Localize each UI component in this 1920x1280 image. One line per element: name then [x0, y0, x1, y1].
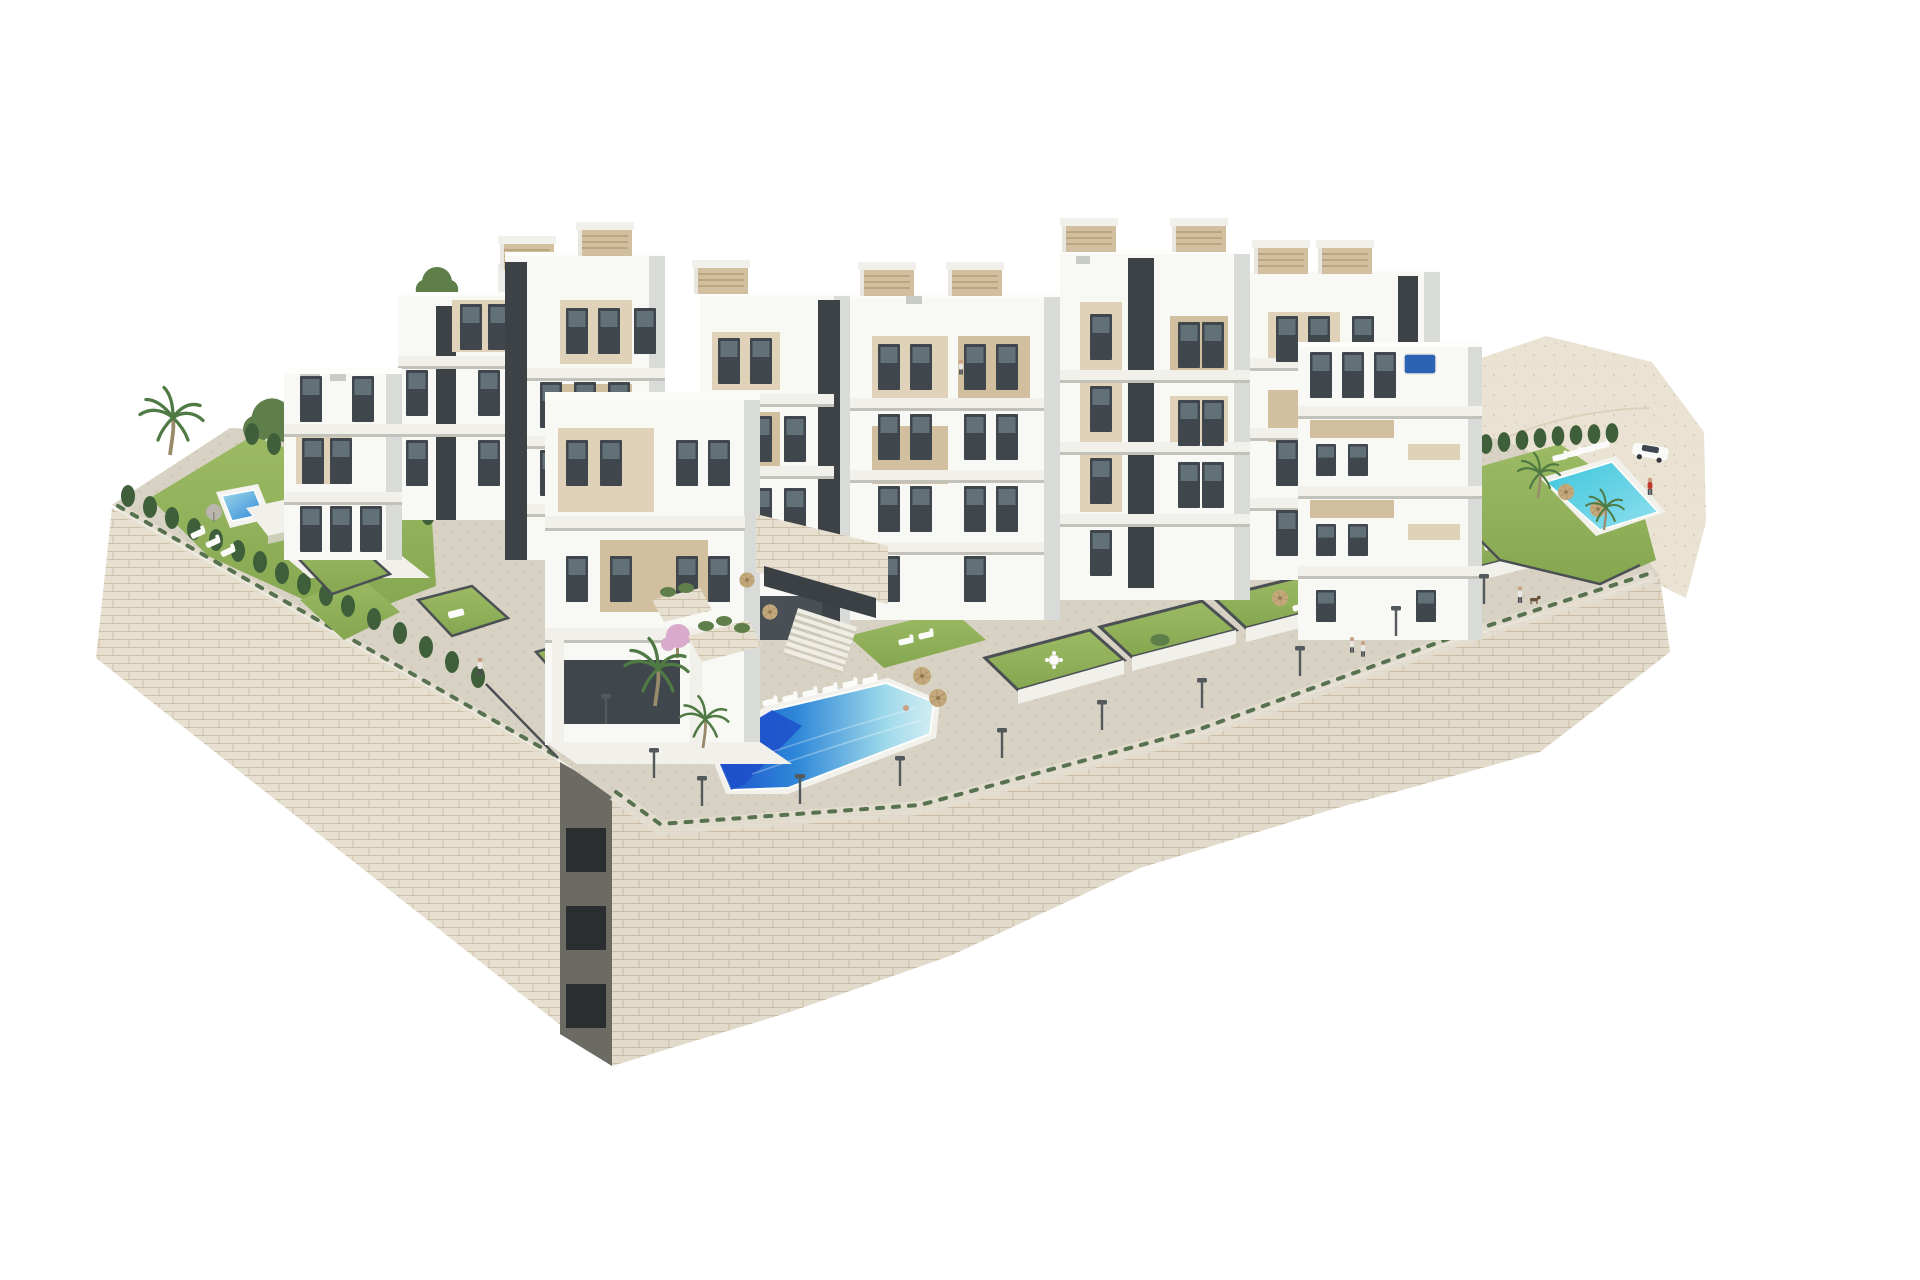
garden-parasol — [1272, 590, 1288, 606]
window — [1178, 400, 1200, 446]
window — [1348, 524, 1368, 556]
window — [1316, 524, 1336, 556]
window — [996, 486, 1018, 532]
window — [910, 414, 932, 460]
window — [910, 344, 932, 390]
window — [708, 440, 730, 486]
straw-parasol — [1558, 484, 1574, 500]
window — [1276, 440, 1298, 486]
rooftop-pergola — [1252, 240, 1310, 274]
planter-shrub — [716, 616, 732, 626]
window — [1316, 590, 1336, 622]
rooftop-pergola — [692, 260, 750, 294]
straw-parasol — [762, 604, 777, 619]
balcony-front — [1408, 524, 1460, 540]
rooftop-pergola — [858, 262, 916, 296]
rooftop-furniture — [1076, 256, 1090, 264]
window — [708, 556, 730, 602]
window — [1348, 444, 1368, 476]
glass-terrace — [560, 660, 680, 724]
window — [300, 376, 322, 422]
window — [1316, 444, 1336, 476]
rooftop-pergola — [1170, 218, 1228, 252]
planter-shrub — [660, 587, 676, 597]
window — [1342, 352, 1364, 398]
window — [676, 440, 698, 486]
window — [302, 438, 324, 484]
window — [1090, 458, 1112, 504]
window — [352, 376, 374, 422]
stairwell-opening — [566, 984, 606, 1028]
window — [300, 506, 322, 552]
rooftop-pergola — [576, 222, 634, 256]
stairwell-opening — [566, 828, 606, 872]
window — [330, 506, 352, 552]
building-block — [1060, 218, 1250, 600]
window — [964, 486, 986, 532]
terrace-parapet — [545, 742, 792, 764]
rooftop-pergola — [1316, 240, 1374, 274]
window — [784, 416, 806, 462]
building-block — [284, 368, 402, 560]
window — [1090, 314, 1112, 360]
window — [1416, 590, 1436, 622]
window — [360, 506, 382, 552]
window — [478, 370, 500, 416]
planter-shrub — [698, 621, 714, 631]
straw-parasol — [913, 667, 931, 685]
stair-core — [505, 262, 527, 560]
window — [750, 338, 772, 384]
stairwell-opening — [566, 906, 606, 950]
window — [996, 414, 1018, 460]
balcony-front — [1310, 420, 1394, 438]
window — [1276, 510, 1298, 556]
balcony-front — [1408, 444, 1460, 460]
swimmer — [903, 705, 909, 711]
window — [718, 338, 740, 384]
window — [964, 414, 986, 460]
window — [878, 414, 900, 460]
window — [406, 370, 428, 416]
window — [1090, 386, 1112, 432]
window — [566, 556, 588, 602]
architectural-render — [0, 0, 1920, 1280]
planter-shrub — [678, 583, 694, 593]
window — [610, 556, 632, 602]
window — [1202, 322, 1224, 368]
render-canvas — [0, 0, 1920, 1280]
window — [600, 440, 622, 486]
window — [878, 344, 900, 390]
rooftop-furniture — [906, 296, 922, 304]
rooftop-plunge-pool — [1404, 354, 1436, 374]
balcony-front — [1310, 500, 1394, 518]
window — [1202, 462, 1224, 508]
building-block — [1298, 342, 1482, 640]
window — [910, 486, 932, 532]
palm-tree — [140, 388, 203, 456]
window — [1090, 530, 1112, 576]
window — [1178, 322, 1200, 368]
stair-core — [1128, 258, 1154, 588]
window — [634, 308, 656, 354]
window — [878, 486, 900, 532]
window — [1310, 352, 1332, 398]
window — [598, 308, 620, 354]
window — [1178, 462, 1200, 508]
window — [566, 308, 588, 354]
rooftop-pergola — [1060, 218, 1118, 252]
window — [330, 438, 352, 484]
window — [460, 304, 482, 350]
window — [964, 556, 986, 602]
window — [1374, 352, 1396, 398]
window — [406, 440, 428, 486]
garden-shrub — [1150, 634, 1169, 646]
window — [996, 344, 1018, 390]
window — [964, 344, 986, 390]
window — [478, 440, 500, 486]
planter-shrub — [734, 623, 750, 633]
straw-parasol — [739, 572, 754, 587]
window — [566, 440, 588, 486]
straw-parasol — [929, 689, 947, 707]
building-block — [545, 392, 792, 764]
rooftop-furniture — [330, 374, 346, 381]
rooftop-pergola — [946, 262, 1004, 296]
window — [1202, 400, 1224, 446]
window — [1276, 316, 1298, 362]
